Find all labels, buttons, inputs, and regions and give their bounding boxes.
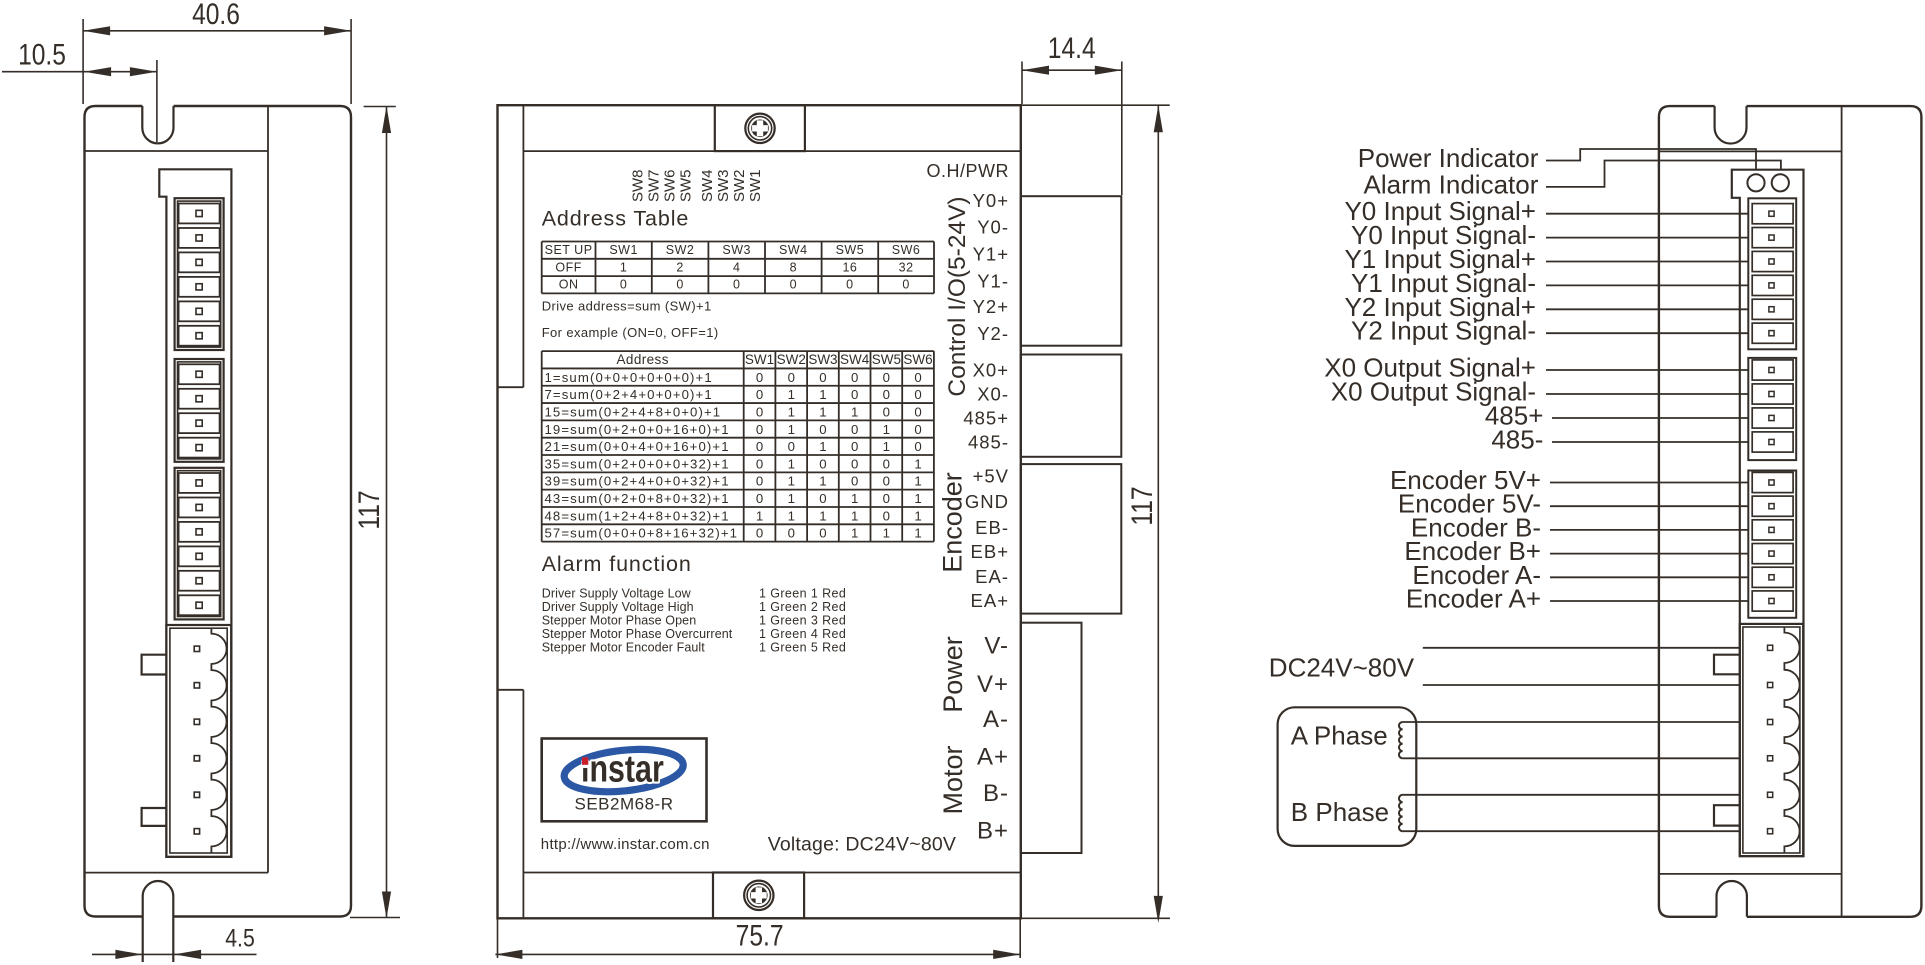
svg-text:0: 0: [788, 526, 795, 541]
svg-text:485+: 485+: [963, 408, 1009, 429]
svg-text:0: 0: [883, 456, 890, 471]
svg-text:SW5: SW5: [677, 169, 694, 202]
svg-text:0: 0: [914, 387, 921, 402]
svg-text:1: 1: [851, 491, 858, 506]
svg-text:4.5: 4.5: [225, 924, 255, 952]
svg-text:15=sum(0+2+4+8+0+0)+1: 15=sum(0+2+4+8+0+0)+1: [545, 404, 722, 419]
svg-text:EB-: EB-: [975, 517, 1009, 538]
svg-text:1: 1: [851, 404, 858, 419]
svg-text:1 Green 1 Red: 1 Green 1 Red: [759, 587, 846, 601]
svg-text:0: 0: [883, 491, 890, 506]
svg-text:1: 1: [819, 404, 826, 419]
svg-text:SW2: SW2: [666, 243, 695, 257]
svg-text:0: 0: [733, 278, 740, 292]
svg-text:B+: B+: [977, 818, 1009, 845]
svg-text:A Phase: A Phase: [1291, 721, 1388, 751]
svg-text:EA-: EA-: [975, 566, 1009, 587]
svg-text:Power: Power: [938, 636, 968, 713]
svg-text:1: 1: [788, 404, 795, 419]
svg-text:Control I/O(5-24V): Control I/O(5-24V): [944, 196, 971, 396]
svg-text:Y2+: Y2+: [973, 296, 1009, 317]
svg-text:32: 32: [899, 260, 914, 274]
svg-text:SW3: SW3: [808, 352, 837, 367]
svg-text:0: 0: [851, 422, 858, 437]
svg-text:4: 4: [733, 260, 740, 274]
svg-text:Address Table: Address Table: [542, 207, 690, 231]
svg-text:0: 0: [756, 439, 763, 454]
svg-text:B Phase: B Phase: [1291, 797, 1389, 827]
svg-text:117: 117: [1125, 486, 1159, 525]
svg-text:Stepper Motor Phase Overcurren: Stepper Motor Phase Overcurrent: [542, 627, 733, 641]
svg-text:0: 0: [756, 526, 763, 541]
svg-text:SW1: SW1: [747, 169, 764, 202]
svg-text:1: 1: [788, 508, 795, 523]
svg-text:1: 1: [788, 387, 795, 402]
svg-text:1: 1: [819, 508, 826, 523]
svg-text:0: 0: [676, 278, 683, 292]
svg-text:Stepper Motor Phase Open: Stepper Motor Phase Open: [542, 614, 697, 628]
svg-text:0: 0: [883, 387, 890, 402]
svg-text:Motor: Motor: [938, 745, 968, 814]
svg-text:Encoder A+: Encoder A+: [1406, 584, 1541, 614]
svg-text:Driver Supply Voltage High: Driver Supply Voltage High: [542, 600, 694, 614]
svg-text:1: 1: [914, 474, 921, 489]
svg-text:0: 0: [914, 422, 921, 437]
svg-text:0: 0: [819, 370, 826, 385]
svg-text:X0-: X0-: [977, 384, 1009, 405]
svg-text:21=sum(0+0+4+0+16+0)+1: 21=sum(0+0+4+0+16+0)+1: [545, 439, 730, 454]
svg-text:0: 0: [851, 456, 858, 471]
svg-text:1: 1: [788, 491, 795, 506]
svg-text:0: 0: [756, 387, 763, 402]
svg-text:ON: ON: [559, 278, 579, 292]
svg-text:EA+: EA+: [971, 590, 1009, 611]
svg-text:1: 1: [788, 422, 795, 437]
svg-text:1 Green 5 Red: 1 Green 5 Red: [759, 641, 846, 655]
svg-text:SET UP: SET UP: [545, 243, 593, 257]
svg-text:10.5: 10.5: [18, 37, 66, 71]
svg-text:SW4: SW4: [779, 243, 808, 257]
svg-text:O.H/PWR: O.H/PWR: [927, 161, 1010, 181]
svg-text:SW4: SW4: [840, 352, 870, 367]
svg-text:Y0-: Y0-: [977, 217, 1009, 238]
svg-text:1: 1: [819, 474, 826, 489]
svg-text:SW3: SW3: [715, 169, 732, 202]
svg-text:1: 1: [756, 508, 763, 523]
svg-text:117: 117: [352, 490, 386, 529]
svg-text:X0+: X0+: [973, 360, 1009, 381]
svg-text:SW8: SW8: [630, 169, 647, 202]
svg-text:Y0+: Y0+: [973, 190, 1009, 211]
svg-text:OFF: OFF: [555, 260, 582, 274]
svg-text:SW4: SW4: [699, 169, 716, 202]
svg-text:SW3: SW3: [722, 243, 751, 257]
svg-text:Y1-: Y1-: [977, 270, 1009, 291]
svg-text:0: 0: [914, 370, 921, 385]
svg-text:V-: V-: [984, 633, 1009, 660]
svg-text:Stepper Motor Encoder Fault: Stepper Motor Encoder Fault: [542, 641, 706, 655]
svg-text:Voltage: DC24V~80V: Voltage: DC24V~80V: [768, 833, 956, 855]
svg-text:+5V: +5V: [973, 466, 1009, 487]
svg-text:43=sum(0+2+0+8+0+32)+1: 43=sum(0+2+0+8+0+32)+1: [545, 491, 730, 506]
svg-text:0: 0: [819, 456, 826, 471]
svg-text:SW5: SW5: [872, 352, 901, 367]
svg-text:0: 0: [883, 404, 890, 419]
svg-text:1: 1: [914, 456, 921, 471]
svg-text:SW1: SW1: [609, 243, 638, 257]
svg-text:Drive address=sum (SW)+1: Drive address=sum (SW)+1: [542, 299, 712, 314]
svg-text:16: 16: [842, 260, 857, 274]
svg-text:V+: V+: [977, 671, 1009, 698]
svg-text:SW6: SW6: [661, 169, 678, 202]
svg-text:0: 0: [846, 278, 853, 292]
svg-text:0: 0: [756, 474, 763, 489]
svg-text:http://www.instar.com.cn: http://www.instar.com.cn: [541, 836, 710, 853]
svg-text:75.7: 75.7: [736, 918, 784, 952]
svg-text:B-: B-: [983, 780, 1009, 807]
svg-text:0: 0: [851, 387, 858, 402]
svg-text:SW2: SW2: [777, 352, 806, 367]
svg-text:A+: A+: [977, 744, 1009, 771]
svg-text:Y2-: Y2-: [977, 323, 1009, 344]
svg-text:Driver Supply Voltage Low: Driver Supply Voltage Low: [542, 587, 692, 601]
svg-text:Encoder: Encoder: [938, 472, 968, 573]
svg-text:57=sum(0+0+0+8+16+32)+1: 57=sum(0+0+0+8+16+32)+1: [545, 526, 739, 541]
svg-text:0: 0: [788, 439, 795, 454]
svg-text:EB+: EB+: [971, 541, 1009, 562]
svg-text:35=sum(0+2+0+0+0+32)+1: 35=sum(0+2+0+0+0+32)+1: [545, 456, 730, 471]
svg-text:0: 0: [883, 508, 890, 523]
svg-text:0: 0: [902, 278, 909, 292]
svg-text:0: 0: [620, 278, 627, 292]
svg-text:0: 0: [851, 370, 858, 385]
svg-text:7=sum(0+2+4+0+0+0)+1: 7=sum(0+2+4+0+0+0)+1: [545, 387, 713, 402]
svg-text:SW5: SW5: [836, 243, 865, 257]
svg-text:1: 1: [883, 422, 890, 437]
svg-text:GND: GND: [965, 491, 1009, 512]
svg-text:SW2: SW2: [731, 169, 748, 202]
svg-text:0: 0: [788, 370, 795, 385]
svg-text:1: 1: [851, 526, 858, 541]
svg-text:1: 1: [914, 526, 921, 541]
svg-text:0: 0: [756, 422, 763, 437]
svg-text:0: 0: [851, 474, 858, 489]
svg-text:14.4: 14.4: [1048, 31, 1096, 65]
svg-text:1: 1: [819, 439, 826, 454]
svg-text:Y2 Input Signal-: Y2 Input Signal-: [1351, 316, 1536, 346]
svg-text:0: 0: [756, 370, 763, 385]
svg-text:1: 1: [788, 474, 795, 489]
svg-text:39=sum(0+2+4+0+0+32)+1: 39=sum(0+2+4+0+0+32)+1: [545, 474, 730, 489]
svg-text:Alarm Indicator: Alarm Indicator: [1364, 169, 1539, 199]
svg-text:1 Green 4 Red: 1 Green 4 Red: [759, 627, 846, 641]
svg-text:A-: A-: [983, 706, 1009, 733]
svg-text:1=sum(0+0+0+0+0+0)+1: 1=sum(0+0+0+0+0+0)+1: [545, 370, 713, 385]
svg-text:40.6: 40.6: [192, 0, 240, 30]
svg-text:1: 1: [914, 491, 921, 506]
svg-text:8: 8: [790, 260, 797, 274]
svg-text:1 Green 2 Red: 1 Green 2 Red: [759, 600, 846, 614]
svg-text:SW7: SW7: [645, 169, 662, 202]
svg-text:Y1+: Y1+: [973, 244, 1009, 265]
svg-text:SW1: SW1: [745, 352, 774, 367]
svg-text:1: 1: [883, 439, 890, 454]
svg-text:2: 2: [676, 260, 683, 274]
svg-text:0: 0: [914, 439, 921, 454]
svg-text:0: 0: [819, 422, 826, 437]
svg-text:1 Green 3 Red: 1 Green 3 Red: [759, 614, 846, 628]
svg-text:0: 0: [819, 491, 826, 506]
svg-text:Address: Address: [617, 352, 669, 367]
svg-text:0: 0: [851, 439, 858, 454]
svg-text:Alarm function: Alarm function: [542, 552, 692, 576]
svg-text:1: 1: [851, 508, 858, 523]
svg-text:1: 1: [620, 260, 627, 274]
svg-text:48=sum(1+2+4+8+0+32)+1: 48=sum(1+2+4+8+0+32)+1: [545, 508, 730, 523]
svg-text:1: 1: [883, 526, 890, 541]
svg-text:485-: 485-: [968, 432, 1009, 453]
svg-text:485-: 485-: [1491, 425, 1543, 455]
svg-text:0: 0: [914, 404, 921, 419]
svg-text:SEB2M68-R: SEB2M68-R: [575, 795, 674, 814]
svg-text:SW6: SW6: [903, 352, 932, 367]
svg-text:0: 0: [756, 456, 763, 471]
svg-text:ınstar: ınstar: [581, 748, 664, 790]
svg-text:19=sum(0+2+0+0+16+0)+1: 19=sum(0+2+0+0+16+0)+1: [545, 422, 730, 437]
svg-text:0: 0: [790, 278, 797, 292]
svg-text:0: 0: [883, 474, 890, 489]
svg-text:0: 0: [819, 526, 826, 541]
svg-text:SW6: SW6: [892, 243, 921, 257]
svg-text:For example (ON=0, OFF=1): For example (ON=0, OFF=1): [542, 325, 719, 340]
svg-text:1: 1: [914, 508, 921, 523]
svg-text:0: 0: [756, 404, 763, 419]
svg-text:1: 1: [788, 456, 795, 471]
svg-text:1: 1: [819, 387, 826, 402]
svg-text:0: 0: [756, 491, 763, 506]
svg-text:DC24V~80V: DC24V~80V: [1269, 652, 1415, 682]
svg-text:0: 0: [883, 370, 890, 385]
